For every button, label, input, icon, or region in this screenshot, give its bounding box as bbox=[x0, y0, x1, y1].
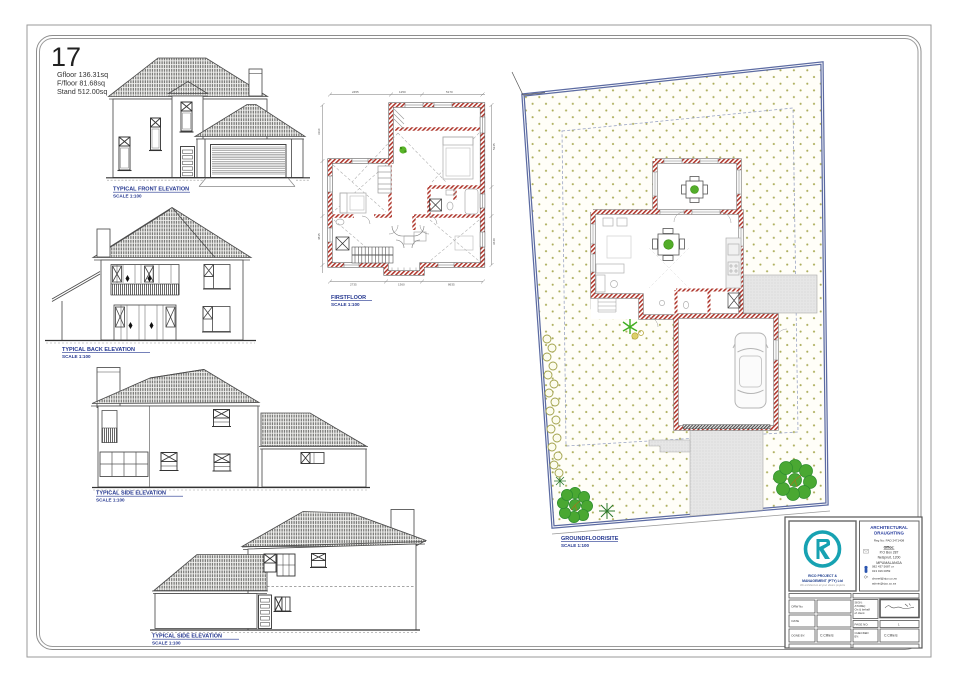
svg-text:4835: 4835 bbox=[317, 233, 321, 240]
svg-text:P.O Box 287: P.O Box 287 bbox=[880, 551, 899, 555]
svg-text:DRAUGHTING: DRAUGHTING bbox=[874, 531, 904, 536]
svg-text:GROUNDFLOOR/SITE: GROUNDFLOOR/SITE bbox=[561, 536, 619, 542]
svg-text:013 016 0059: 013 016 0059 bbox=[872, 569, 891, 573]
svg-text:5170: 5170 bbox=[446, 90, 453, 94]
svg-text:of client: of client bbox=[855, 611, 865, 615]
svg-text:C.Cilliers: C.Cilliers bbox=[820, 634, 834, 638]
svg-text:2735: 2735 bbox=[350, 283, 357, 287]
svg-text:Stand 512.00sq: Stand 512.00sq bbox=[57, 87, 107, 96]
svg-text:DRW No: DRW No bbox=[792, 605, 804, 609]
svg-text:TYPICAL BACK ELEVATION: TYPICAL BACK ELEVATION bbox=[62, 347, 135, 353]
svg-text:3640: 3640 bbox=[492, 238, 496, 245]
svg-text:SCALE 1:100: SCALE 1:100 bbox=[331, 302, 360, 307]
svg-text:FIRSTFLOOR: FIRSTFLOOR bbox=[331, 295, 366, 301]
svg-text:C.Cilliers: C.Cilliers bbox=[884, 634, 898, 638]
svg-text:5245: 5245 bbox=[492, 143, 496, 150]
svg-text:DONE BY:: DONE BY: bbox=[792, 634, 806, 638]
svg-text:PAGE NO:: PAGE NO: bbox=[855, 623, 869, 627]
svg-text:SCALE 1:100: SCALE 1:100 bbox=[561, 543, 590, 548]
svg-text:Nelspruit, 1200: Nelspruit, 1200 bbox=[878, 556, 901, 560]
svg-text:ARCHITECTURAL: ARCHITECTURAL bbox=[870, 525, 908, 530]
svg-text:MANAGEMENT (PTY) Ltd: MANAGEMENT (PTY) Ltd bbox=[802, 579, 843, 583]
svg-text:Reg No: PAD 2471408: Reg No: PAD 2471408 bbox=[874, 539, 905, 543]
svg-text:8635: 8635 bbox=[448, 283, 455, 287]
svg-text:SCALE 1:100: SCALE 1:100 bbox=[113, 194, 142, 199]
svg-text:1250: 1250 bbox=[399, 90, 406, 94]
svg-text:TYPICAL FRONT ELEVATION: TYPICAL FRONT ELEVATION bbox=[113, 187, 189, 193]
svg-text:Office:: Office: bbox=[884, 546, 895, 550]
svg-text:RICO PROJECT &: RICO PROJECT & bbox=[808, 574, 837, 578]
svg-text:SCALE 1:100: SCALE 1:100 bbox=[62, 354, 91, 359]
svg-text:TYPICAL SIDE ELEVATION: TYPICAL SIDE ELEVATION bbox=[96, 491, 166, 497]
svg-text:admin@rjco.co.za: admin@rjco.co.za bbox=[872, 582, 896, 586]
svg-text:082 437 5687 or: 082 437 5687 or bbox=[872, 565, 894, 569]
svg-text:1360: 1360 bbox=[398, 283, 405, 287]
svg-text:17: 17 bbox=[51, 42, 81, 72]
svg-text:We architecture all your dream: We architecture all your dream projects bbox=[800, 583, 846, 587]
svg-text:DATE: DATE bbox=[792, 619, 800, 623]
svg-text:SCALE 1:100: SCALE 1:100 bbox=[96, 498, 125, 503]
svg-text:chanel@rjco.co.za: chanel@rjco.co.za bbox=[872, 577, 897, 581]
svg-text:3110: 3110 bbox=[317, 128, 321, 135]
svg-text:2455: 2455 bbox=[352, 90, 359, 94]
svg-text:SCALE 1:100: SCALE 1:100 bbox=[152, 641, 181, 646]
svg-text:BY:: BY: bbox=[855, 635, 860, 639]
svg-text:TYPICAL SIDE ELEVATION: TYPICAL SIDE ELEVATION bbox=[152, 634, 222, 640]
